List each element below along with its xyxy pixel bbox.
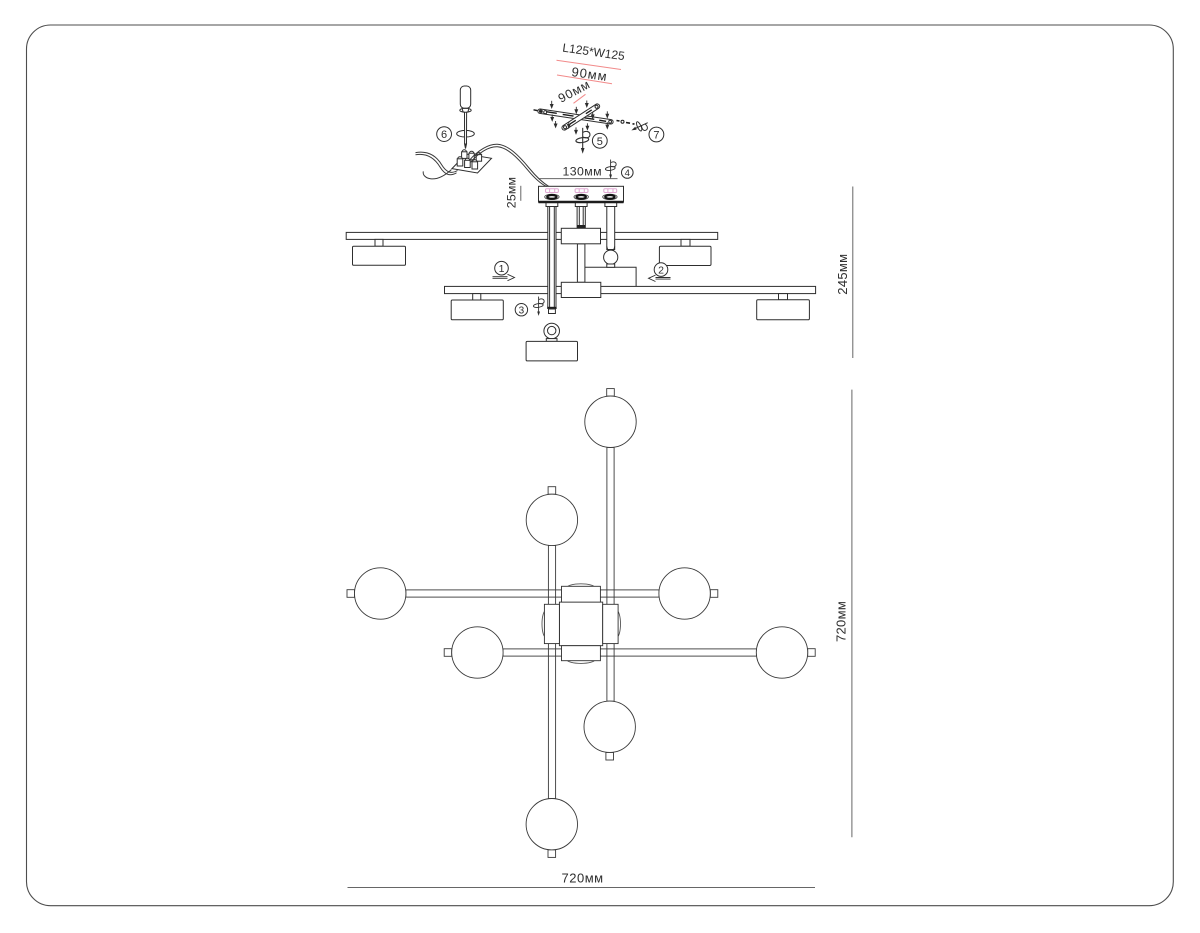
svg-text:5: 5 [597,136,603,148]
svg-text:6: 6 [441,129,447,141]
svg-text:2: 2 [658,264,664,276]
svg-text:3: 3 [519,305,525,316]
svg-text:720мм: 720мм [562,870,604,885]
svg-text:720мм: 720мм [834,601,849,642]
svg-text:1: 1 [499,263,505,275]
svg-text:4: 4 [625,168,630,179]
svg-text:7: 7 [653,130,659,142]
svg-text:245мм: 245мм [835,254,850,295]
svg-text:25мм: 25мм [505,177,519,208]
svg-text:130мм: 130мм [563,165,602,179]
